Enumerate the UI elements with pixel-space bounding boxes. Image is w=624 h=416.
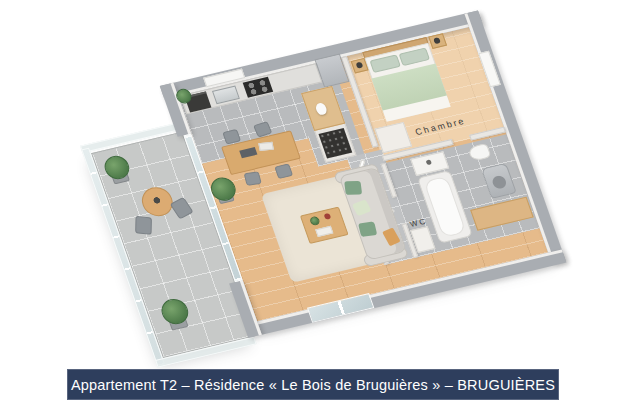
caption-text: Appartement T2 – Résidence « Le Bois de …	[71, 377, 555, 393]
sofa-cushion	[358, 221, 377, 237]
sofa-cushion	[344, 181, 362, 195]
caption-bar: Appartement T2 – Résidence « Le Bois de …	[67, 369, 559, 400]
balcony-chair	[135, 216, 152, 235]
floorplan-scene: Chambre WC	[178, 27, 548, 322]
dining-chair	[244, 171, 262, 186]
book	[258, 142, 274, 151]
